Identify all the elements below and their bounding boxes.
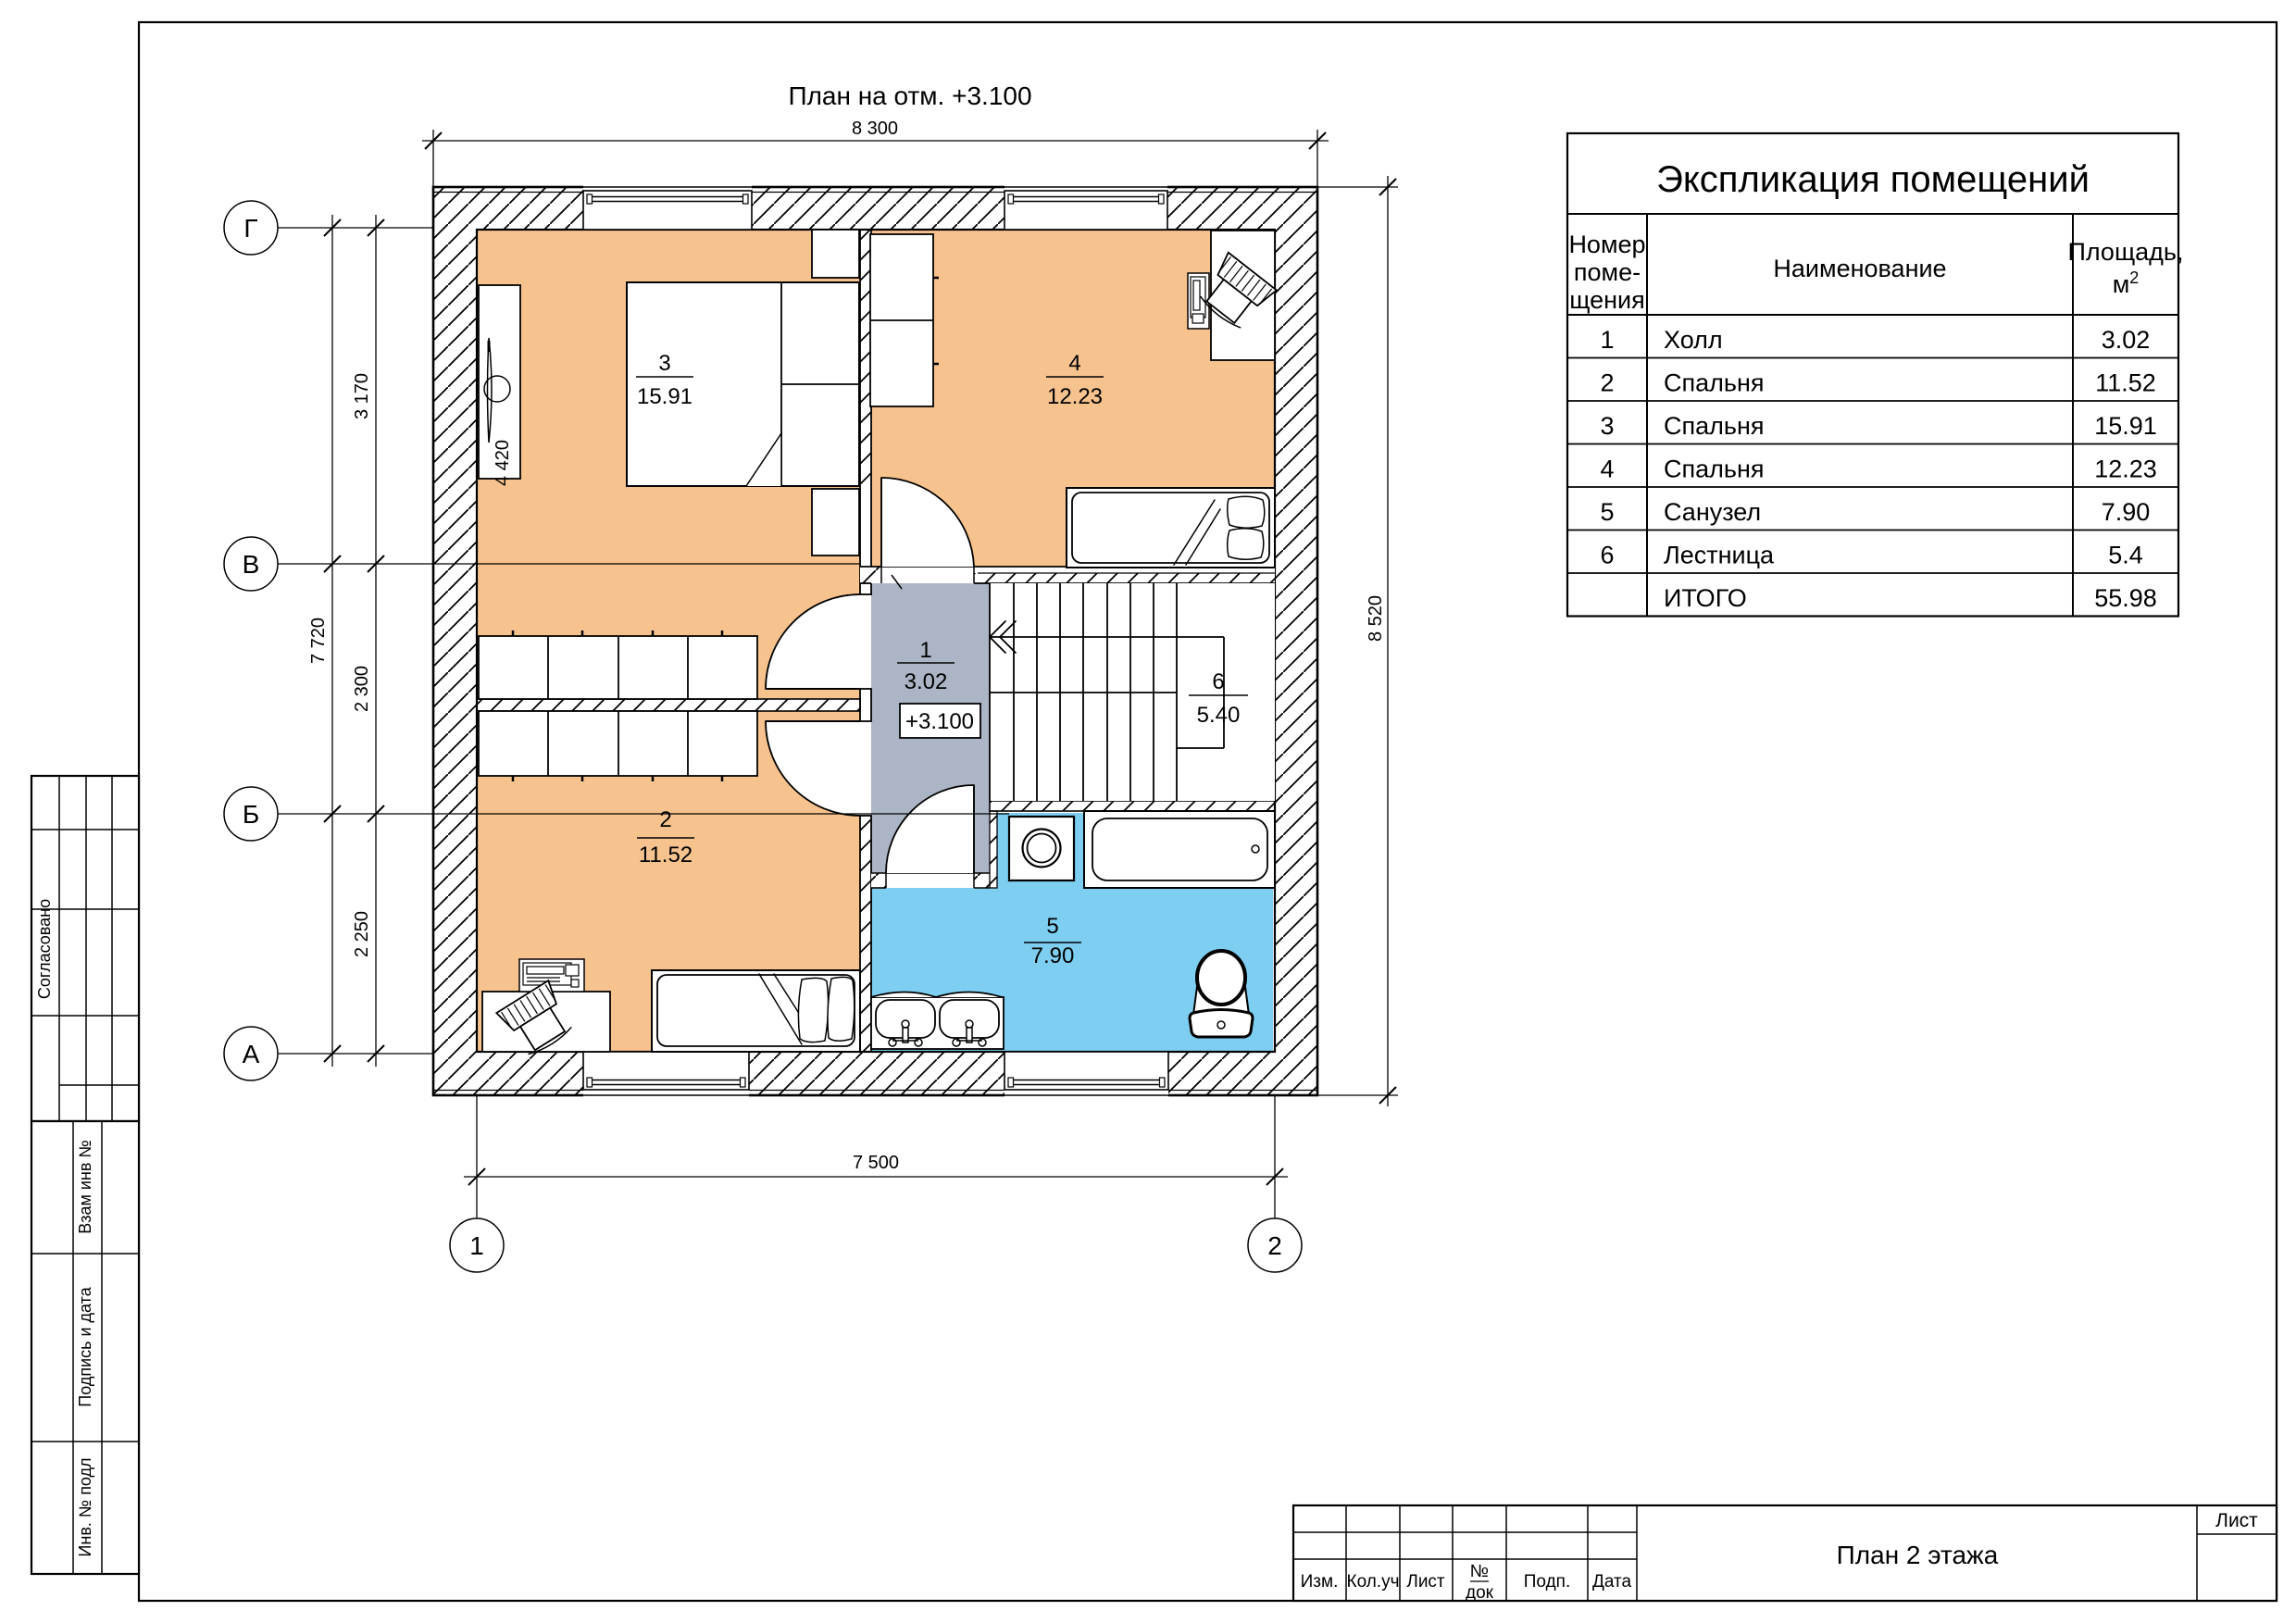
svg-text:4: 4 [1600,456,1614,483]
svg-text:5.40: 5.40 [1197,703,1241,728]
svg-text:12.23: 12.23 [2094,456,2157,483]
svg-text:1: 1 [469,1231,484,1260]
svg-text:8 520: 8 520 [1366,595,1386,642]
svg-text:Санузел: Санузел [1664,498,1761,526]
svg-text:6: 6 [1212,669,1224,694]
svg-text:3: 3 [1600,412,1614,440]
svg-text:План на отм. +3.100: План на отм. +3.100 [788,81,1031,110]
svg-text:2: 2 [659,807,671,832]
svg-text:3.02: 3.02 [905,669,948,694]
svg-text:2: 2 [1600,369,1614,397]
svg-text:15.91: 15.91 [2094,412,2157,440]
svg-text:Спальня: Спальня [1664,369,1765,397]
svg-text:поме-: поме- [1574,258,1641,286]
svg-text:4: 4 [1068,351,1080,376]
svg-text:3.02: 3.02 [2102,326,2151,354]
svg-text:ИТОГО: ИТОГО [1664,584,1747,612]
svg-text:док: док [1466,1583,1494,1603]
svg-text:Подп.: Подп. [1524,1572,1570,1592]
svg-text:8 300: 8 300 [852,119,898,139]
svg-text:Инв. № подл: Инв. № подл [76,1457,94,1556]
svg-text:5.4: 5.4 [2108,542,2143,569]
svg-text:№: № [1470,1562,1489,1581]
svg-text:12.23: 12.23 [1047,384,1103,409]
svg-text:Лист: Лист [2215,1510,2258,1531]
svg-text:7.90: 7.90 [1031,943,1075,968]
svg-text:2: 2 [1267,1231,1282,1260]
svg-text:1: 1 [1600,326,1614,354]
svg-text:Взам инв №: Взам инв № [76,1140,94,1234]
svg-text:Г: Г [243,214,257,243]
svg-text:Б: Б [243,800,259,829]
svg-text:4 420: 4 420 [493,440,513,486]
svg-text:Изм.: Изм. [1301,1572,1339,1592]
svg-text:Номер: Номер [1568,231,1645,258]
svg-text:План 2 этажа: План 2 этажа [1837,1541,1999,1569]
svg-text:7.90: 7.90 [2102,498,2151,526]
svg-text:щения: щения [1569,286,1645,314]
svg-text:Лестница: Лестница [1664,542,1775,569]
svg-text:Спальня: Спальня [1664,412,1765,440]
svg-text:2 250: 2 250 [352,911,372,957]
svg-text:А: А [243,1040,260,1068]
svg-text:2 300: 2 300 [352,666,372,712]
svg-text:Наименование: Наименование [1773,255,1946,282]
svg-text:3 170: 3 170 [352,373,372,419]
svg-text:+3.100: +3.100 [905,709,974,734]
svg-text:7 720: 7 720 [308,618,329,664]
svg-text:3: 3 [658,351,670,376]
svg-text:11.52: 11.52 [639,843,693,868]
svg-text:15.91: 15.91 [637,384,693,409]
svg-text:5: 5 [1600,498,1614,526]
svg-text:Согласовано: Согласовано [35,899,54,999]
svg-text:1: 1 [919,638,931,663]
svg-text:Экспликация помещений: Экспликация помещений [1656,159,2090,200]
svg-text:55.98: 55.98 [2094,584,2157,612]
svg-text:Подпись и дата: Подпись и дата [76,1286,94,1406]
svg-text:6: 6 [1600,542,1614,569]
svg-text:Площадь,: Площадь, [2067,238,2183,266]
svg-text:Дата: Дата [1592,1572,1632,1592]
svg-text:5: 5 [1046,914,1058,939]
svg-text:7 500: 7 500 [853,1153,899,1173]
svg-text:В: В [243,550,260,579]
svg-text:Спальня: Спальня [1664,456,1765,483]
svg-text:Кол.уч: Кол.уч [1347,1572,1400,1592]
svg-text:Холл: Холл [1664,326,1723,354]
svg-text:Лист: Лист [1406,1572,1445,1592]
svg-text:11.52: 11.52 [2095,369,2156,397]
